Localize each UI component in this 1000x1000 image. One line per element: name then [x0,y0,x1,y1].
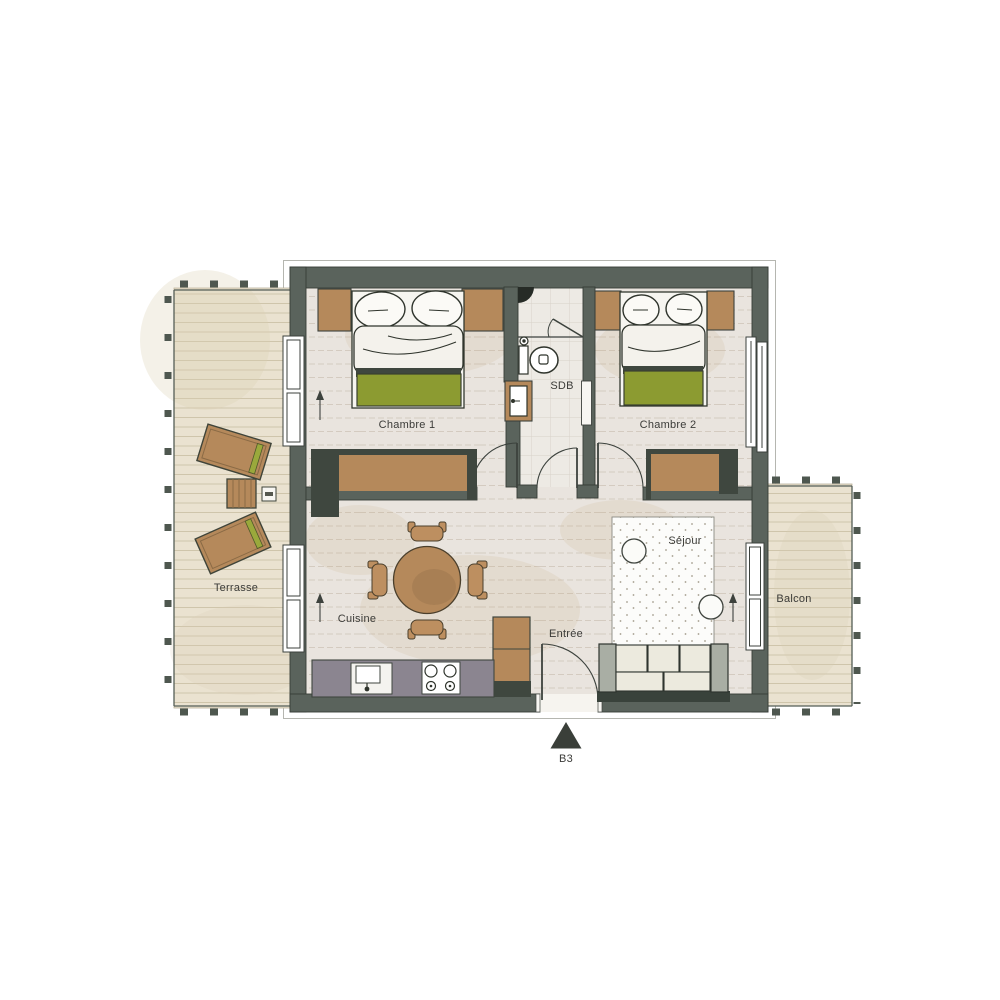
nightstand [318,289,351,331]
tall-cabinet-fridge [493,617,530,683]
blanket-chambre1 [357,374,461,406]
wardrobe-chambre2-frame-left [646,449,651,500]
nightstand [595,291,621,330]
pouf [699,595,723,619]
floor-plan-drawing: Chambre 1 Chambre 2 SDB Cuisine Entrée S… [0,0,1000,1000]
washbasin [510,386,527,416]
wall-chambre1-sdb [504,287,518,382]
window-chambre2-east [746,337,767,452]
window-cuisine-terrace [283,545,304,652]
sofa-seat-cushion [616,672,663,691]
terrace-small-stool [262,487,276,501]
room-label-sdb: SDB [550,380,573,392]
table-shading [412,569,456,605]
living-room [597,517,730,702]
room-label-chambre1: Chambre 1 [379,419,436,431]
bathroom-wall-niche [582,381,592,425]
entrance-marker-triangle [551,722,582,749]
room-label-cuisine: Cuisine [338,613,376,625]
sofa-back-cushion [616,645,647,672]
wardrobe-chambre1-frame-right [467,449,477,500]
sofa-back-cushion [680,645,710,672]
kitchen-counter [312,660,494,697]
wardrobe-chambre1-front [319,455,467,491]
wall-north [290,267,768,288]
unit-label: B3 [559,753,573,765]
wardrobe-chambre2-end-block [719,452,738,494]
sofa-back-cushion [648,645,679,672]
terrace-side-table [227,479,256,508]
room-label-sejour: Séjour [668,535,701,547]
sofa-armrest [599,644,616,692]
wall-hall-post-right [577,485,598,498]
sofa [597,644,730,702]
room-label-entree: Entrée [549,628,583,640]
sofa-seat-cushion [664,672,710,691]
window-chambre1-terrace [283,336,304,446]
unit-marker: B3 [551,722,582,765]
nightstand [707,291,734,330]
sofa-armrest [711,644,728,692]
room-label-balcon: Balcon [776,593,811,605]
terrace-wash [140,270,270,410]
nightstand [462,289,503,331]
room-label-chambre2: Chambre 2 [640,419,697,431]
fridge-base [494,681,531,697]
window-sejour-balcony [746,543,764,650]
pouf [622,539,646,563]
kitchen-sink-unit [351,663,392,694]
floor-plan-page: Chambre 1 Chambre 2 SDB Cuisine Entrée S… [0,0,1000,1000]
wardrobe-chambre2-front [651,454,719,491]
entrance-jamb-left [536,694,540,712]
sofa-base [597,691,730,702]
blanket-chambre2 [624,371,703,405]
duvet [354,326,463,374]
wall-hall-post-left [517,485,537,498]
structural-pillar [311,449,339,517]
entrance-opening [540,694,598,712]
room-label-terrasse: Terrasse [214,582,258,594]
kitchen [312,660,494,697]
wall-chambre1-hall [506,420,520,487]
cooktop [422,662,460,694]
